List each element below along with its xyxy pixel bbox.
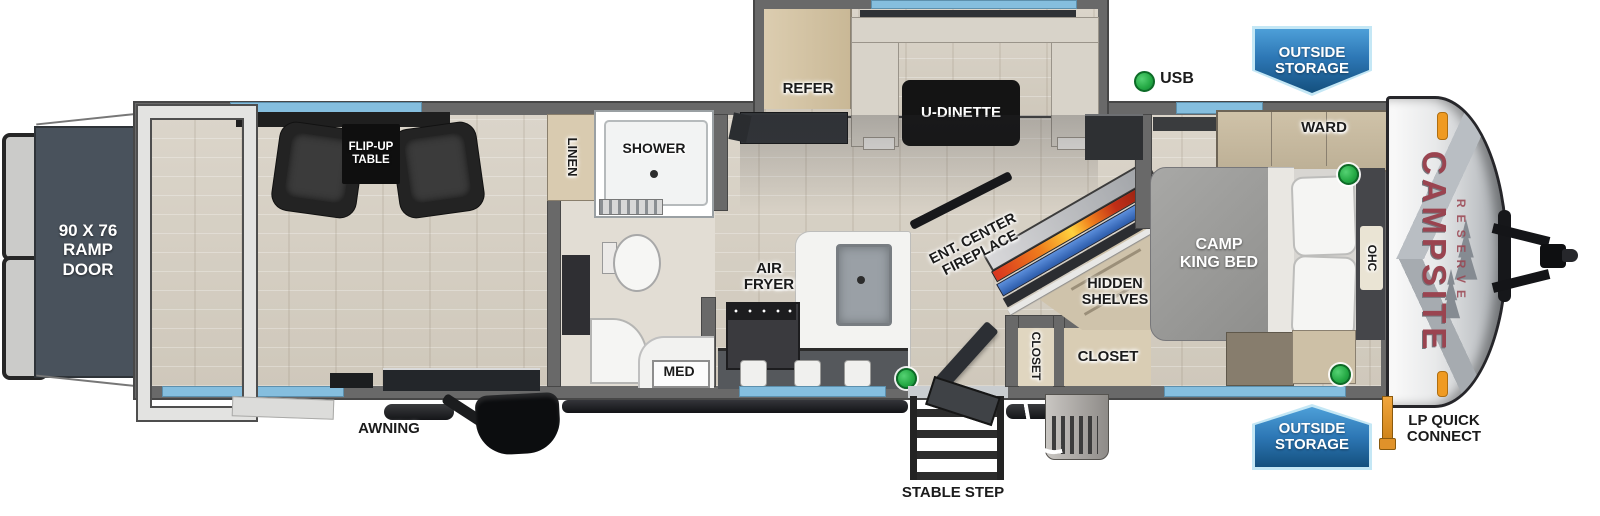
outside-storage-bottom-label: OUTSIDE STORAGE	[1275, 421, 1349, 453]
refer-label: REFER	[762, 78, 854, 100]
kitchen-sink	[836, 244, 892, 326]
awning-label: AWNING	[348, 418, 430, 440]
ohc-label: OHC	[1366, 238, 1378, 278]
garage-bench	[383, 368, 540, 391]
hitch-coupler-tip	[1562, 249, 1578, 262]
outside-storage-top-label: OUTSIDE STORAGE	[1275, 45, 1349, 77]
shower-label: SHOWER	[600, 138, 708, 160]
range-burners	[726, 302, 796, 320]
floorplan: 90 X 76 RAMP DOOR U-DINETTE REFER FLIP-U…	[0, 0, 1600, 516]
ramp-hinge-line	[36, 113, 140, 126]
bathroom-cabinet	[562, 255, 590, 335]
underbody-tank	[474, 392, 561, 456]
ward-seam	[1271, 112, 1272, 166]
garage-side-table	[330, 373, 373, 388]
shower-grate	[600, 200, 662, 214]
ward-label: WARD	[1292, 117, 1356, 139]
closet-divider-wall	[1054, 316, 1064, 386]
entry-side-cabinet	[1085, 114, 1143, 160]
lp-connector	[1379, 438, 1396, 450]
led-indicator-bed-foot	[1330, 364, 1351, 385]
bed-pillow	[1291, 175, 1358, 257]
flip-up-table-label: FLIP-UP TABLE	[342, 124, 400, 184]
outside-storage-badge-top: OUTSIDE STORAGE	[1252, 26, 1372, 96]
kitchen-faucet	[857, 276, 865, 284]
drawer-front	[740, 360, 767, 387]
bathroom-right-wall-top	[714, 115, 727, 210]
linen-label: LINEN	[565, 127, 579, 187]
recliner-chair	[390, 121, 485, 220]
lp-quick-connect-label: LP QUICK CONNECT	[1400, 408, 1488, 450]
ramp-door-label: 90 X 76 RAMP DOOR	[38, 210, 138, 290]
slideout-shadow	[740, 115, 1098, 210]
stable-step-label: STABLE STEP	[896, 482, 1010, 504]
cap-logo: RESERVE CAMPSITE	[1402, 147, 1482, 357]
drawer-front	[844, 360, 871, 387]
air-fryer-label: AIR FRYER	[733, 256, 805, 298]
ramp-door-frame	[138, 106, 256, 420]
entry-closet-label: CLOSET	[1030, 328, 1042, 384]
closet-left-wall	[1006, 316, 1018, 386]
bedroom-closet-label: CLOSET	[1068, 346, 1148, 368]
usb-label: USB	[1156, 69, 1198, 89]
camp-king-bed-label: CAMP KING BED	[1148, 226, 1290, 282]
med-label: MED	[652, 360, 706, 384]
kitchen-window	[740, 387, 885, 396]
bedroom-bottom-window	[1165, 387, 1345, 396]
dinette-seat-back	[852, 18, 1098, 42]
bed-pillow	[1291, 255, 1358, 339]
drawer-front	[794, 360, 821, 387]
toilet-bowl	[613, 234, 661, 292]
bed-foot-dresser	[1226, 332, 1294, 386]
usb-indicator	[1134, 71, 1155, 92]
led-indicator-bed-head	[1338, 164, 1359, 185]
cap-logo-reserve: RESERVE	[1455, 199, 1469, 305]
clearance-marker	[1437, 371, 1448, 397]
under-step-pad	[232, 396, 335, 420]
shower-drain	[650, 170, 658, 178]
outside-storage-badge-bottom: OUTSIDE STORAGE	[1252, 404, 1372, 470]
shower-pan	[604, 120, 708, 206]
awning-roller-main	[562, 400, 908, 413]
slideout-window	[872, 1, 1076, 8]
clearance-marker	[1437, 112, 1448, 140]
hidden-shelves-label: HIDDEN SHELVES	[1074, 272, 1156, 314]
cap-logo-campsite: CAMPSITE	[1416, 151, 1454, 354]
